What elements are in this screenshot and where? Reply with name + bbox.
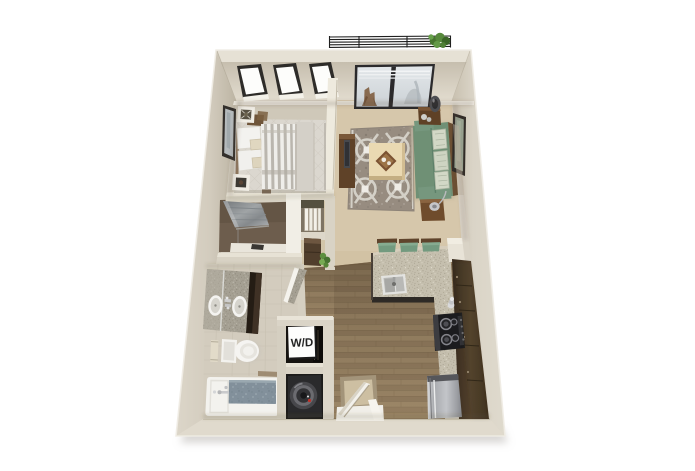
svg-text:W/D: W/D xyxy=(291,336,314,350)
